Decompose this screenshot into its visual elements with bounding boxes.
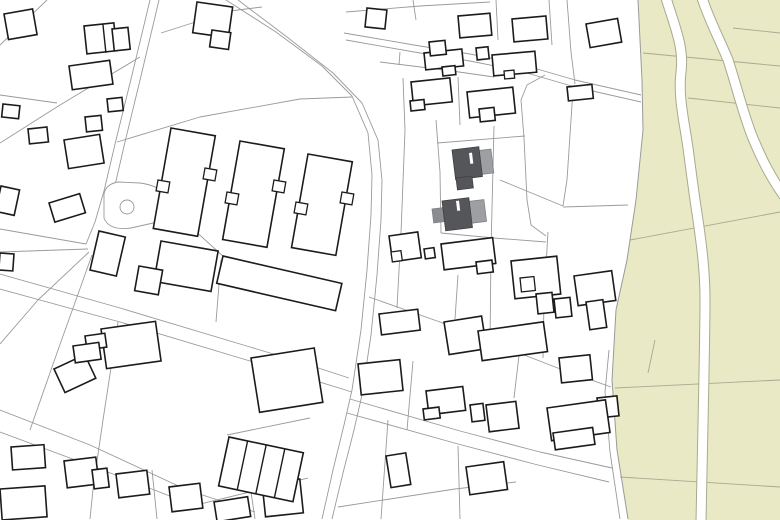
apartment-block-2-notch (272, 180, 286, 193)
building-sw-cluster-part (73, 342, 101, 362)
apartment-block-1-notch (203, 168, 217, 181)
building-c-7 (486, 401, 519, 431)
building-c-sq-part (424, 248, 435, 259)
building-ne-1 (458, 13, 492, 38)
building-mid-left-2-part (154, 241, 218, 291)
building-c-3-part (379, 309, 420, 335)
building-sw-3-part (116, 470, 150, 498)
building-center-large-part (251, 348, 323, 412)
cadastral-map (0, 0, 780, 520)
building-mid-left-2-part (135, 266, 163, 295)
building-se-1 (559, 355, 592, 383)
building-center-large (251, 348, 323, 412)
building-ne-4 (586, 18, 622, 47)
building-nw-2-part (112, 27, 130, 51)
highlighted-building-north-part (456, 176, 473, 190)
building-sw-1-part (11, 445, 46, 470)
cul-de-sac-island (120, 200, 134, 214)
apartment-block-3-notch (294, 202, 308, 215)
building-e-L1-notch (520, 277, 535, 292)
building-nw-1-part (4, 9, 37, 40)
building-nw-4-part (2, 104, 20, 119)
building-top-square-part (365, 8, 387, 29)
building-e-L1-part (511, 256, 561, 299)
building-ne-sq-part (476, 47, 489, 60)
building-c-6 (470, 403, 485, 421)
building-c-5-part (423, 407, 440, 420)
highlighted-building-north-part (452, 147, 482, 180)
apartment-block-1-notch (156, 180, 170, 193)
building-nw-8 (85, 115, 102, 132)
building-c-8-part (386, 453, 411, 488)
building-sw-corner (0, 486, 47, 520)
building-c-1 (389, 232, 421, 262)
building-e-sq-part (554, 297, 572, 318)
building-ne-6-part (479, 107, 495, 121)
building-c-4 (358, 360, 403, 395)
building-nw-5-part (28, 127, 48, 144)
building-e-L1-part (536, 292, 554, 314)
building-c-8 (386, 453, 411, 488)
building-c-sq (424, 248, 435, 259)
building-c-3 (379, 309, 420, 335)
building-c-4-part (358, 360, 403, 395)
building-ne-7 (567, 84, 593, 101)
building-ne-4-part (586, 18, 622, 47)
building-nw-5 (28, 127, 48, 144)
building-e-L2-part (586, 300, 607, 330)
building-c-9-part (466, 462, 508, 495)
building-nw-2 (84, 23, 130, 54)
building-cross-part (429, 40, 446, 56)
building-west-edge-1-part (0, 253, 14, 271)
building-cross-part (442, 66, 456, 76)
building-nw-7 (107, 97, 123, 111)
building-ne-5-part (410, 100, 425, 111)
building-top-square (365, 8, 387, 29)
building-sw-cluster-part (101, 321, 161, 368)
building-sw-4 (169, 483, 203, 512)
building-ne-2-part (512, 16, 548, 42)
building-ne-3-notch (504, 70, 515, 79)
building-sw-corner-part (0, 486, 47, 520)
building-sw-2-part (92, 468, 109, 489)
building-nw-3-part (69, 60, 113, 89)
building-nw-4 (2, 104, 20, 119)
building-nw-3 (69, 60, 113, 89)
building-e-sq (554, 297, 572, 318)
building-nw-6-part (64, 134, 104, 168)
building-nw-7-part (107, 97, 123, 111)
building-nw-2-part (84, 23, 117, 54)
building-sw-1 (11, 445, 46, 470)
apartment-block-3-notch (340, 192, 354, 205)
building-c-1-notch (391, 251, 402, 262)
building-ne-2 (512, 16, 548, 42)
building-c-6-part (470, 403, 485, 421)
building-sw-4-part (169, 483, 203, 512)
building-c-9 (466, 462, 508, 495)
building-c-7-part (486, 401, 519, 431)
building-ne-7-part (567, 84, 593, 101)
building-se-1-part (559, 355, 592, 383)
apartment-block-2-notch (225, 192, 239, 205)
building-nw-1 (4, 9, 37, 40)
map-canvas (0, 0, 780, 520)
building-west-edge-1 (0, 253, 14, 271)
building-ne-1-part (458, 13, 492, 38)
building-sw-3 (116, 470, 150, 498)
building-nw-6 (64, 134, 104, 168)
building-nw-8-part (85, 115, 102, 132)
building-ne-sq (476, 47, 489, 60)
building-c-2-part (476, 260, 493, 274)
building-north-part (210, 30, 231, 49)
